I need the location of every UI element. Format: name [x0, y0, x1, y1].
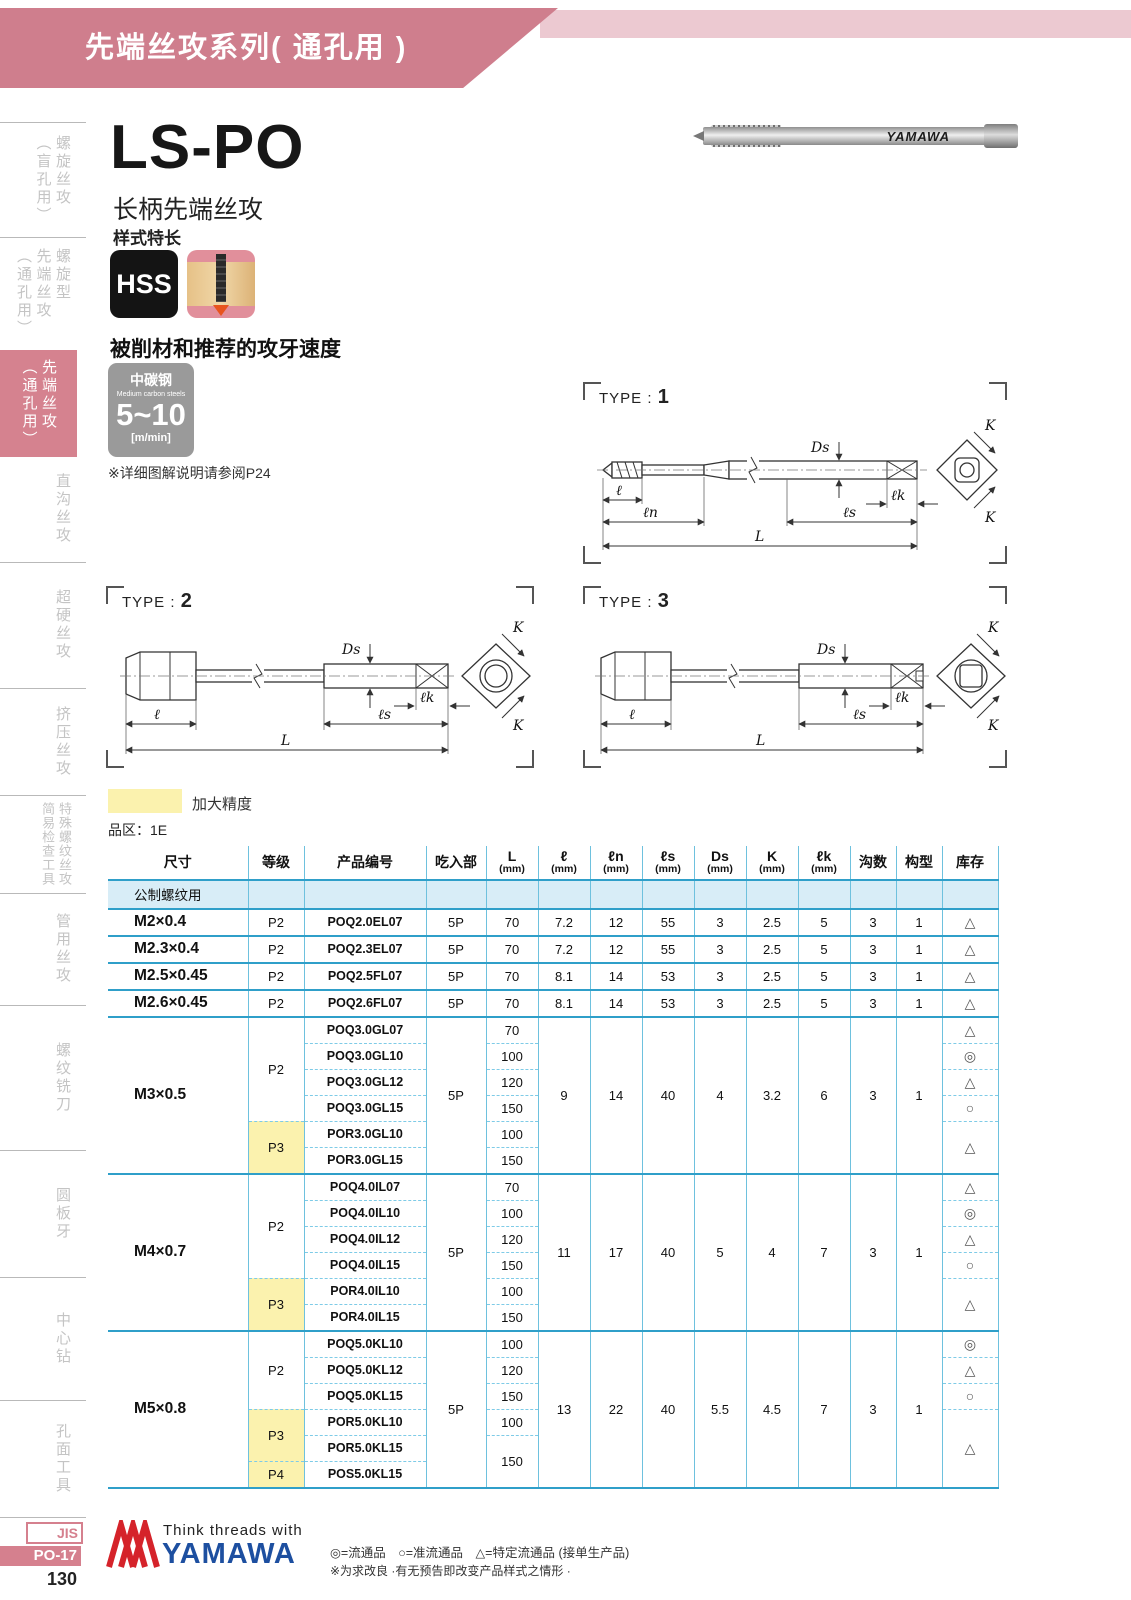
dim-label-k: K [984, 418, 997, 434]
sidebar-item-spiral-blind[interactable]: 螺旋丝攻 （盲孔用） [0, 123, 78, 236]
stock-cell: ◎ [942, 1200, 998, 1226]
col-header-unit: (mm) [799, 864, 850, 876]
sidebar-item-thread-mill[interactable]: 螺纹铣刀 [0, 1006, 78, 1149]
value-cell: 70 [486, 1174, 538, 1201]
code-cell: POQ2.0EL07 [304, 909, 426, 936]
stock-cell: △ [942, 1278, 998, 1331]
dim-label-k: K [987, 620, 1000, 636]
dim-label-k: K [512, 718, 525, 734]
page-number: 130 [0, 1569, 81, 1590]
col-header-main: Ds [695, 849, 746, 864]
code-cell: POR3.0GL15 [304, 1147, 426, 1174]
code-cell: POQ3.0GL07 [304, 1017, 426, 1044]
code-cell: POQ3.0GL15 [304, 1095, 426, 1121]
diagram-type-1: TYPE : 1 Ds ℓ ℓn ℓs [583, 382, 1007, 564]
code-cell: POQ5.0KL10 [304, 1331, 426, 1358]
table-row: M2.3×0.4 P2 POQ2.3EL07 5P 70 7.2 12 55 3… [108, 936, 998, 963]
value-cell: 5P [426, 1017, 486, 1174]
code-cell: POQ4.0IL07 [304, 1174, 426, 1201]
brand-tagline: Think threads with [163, 1522, 303, 1539]
value-cell: 5P [426, 936, 486, 963]
value-cell: 150 [486, 1252, 538, 1278]
series-label: 品区：1E [108, 820, 167, 840]
empty-cell [426, 880, 486, 909]
size-cell: M3×0.5 [108, 1017, 248, 1174]
grade-cell: P2 [248, 1017, 304, 1122]
code-cell: POQ4.0IL12 [304, 1226, 426, 1252]
diagram-type-2: TYPE : 2 Ds ℓ ℓs ℓk L [106, 586, 534, 768]
section-label: 公制螺纹用 [108, 880, 248, 909]
col-header-main: K [747, 849, 798, 864]
reference-note: ※详细图解说明请参阅P24 [108, 463, 271, 483]
sidebar-item-carbide[interactable]: 超硬丝攻 [0, 563, 78, 686]
grade-cell-highlight: P3 [248, 1121, 304, 1174]
code-cell: POR5.0KL15 [304, 1435, 426, 1461]
col-header: ℓs(mm) [642, 846, 694, 880]
stock-symbol-legend: ◎=流通品 ○=准流通品 △=特定流通品 (接单生产品) [330, 1542, 629, 1561]
type3-drawing: Ds ℓ ℓs ℓk L K K [583, 608, 1007, 766]
product-name: 长柄先端丝攻 [113, 190, 263, 226]
value-cell: 3.2 [746, 1017, 798, 1174]
value-cell: 1 [896, 936, 942, 963]
code-cell: POQ5.0KL12 [304, 1357, 426, 1383]
value-cell: 53 [642, 990, 694, 1017]
sidebar-item-special-thread[interactable]: 特殊螺纹丝攻 简易检查工具 [0, 796, 78, 892]
photo-shank [703, 127, 994, 145]
col-header: ℓn(mm) [590, 846, 642, 880]
empty-cell [896, 880, 942, 909]
stock-cell: ◎ [942, 1331, 998, 1358]
bracket-corner [989, 586, 1007, 604]
value-cell: 100 [486, 1043, 538, 1069]
sidebar-item-center-drill[interactable]: 中心钻 [0, 1278, 78, 1399]
jis-badge: JIS [26, 1522, 83, 1544]
diagram-type-3: TYPE : 3 Ds ℓ ℓs ℓk [583, 586, 1007, 768]
dim-label-k: K [987, 718, 1000, 734]
stock-cell: △ [942, 1357, 998, 1383]
dim-label-l: ℓ [154, 707, 160, 723]
dim-label-lk: ℓk [891, 488, 905, 504]
value-cell: 53 [642, 963, 694, 990]
dim-label-ls: ℓs [378, 707, 391, 723]
sidebar-item-label: 孔面工具 [53, 1423, 73, 1495]
value-cell: 55 [642, 909, 694, 936]
dim-label-L: L [755, 733, 765, 749]
value-cell: 8.1 [538, 990, 590, 1017]
stock-cell: △ [942, 963, 998, 990]
value-cell: 150 [486, 1304, 538, 1331]
table-row: M2×0.4 P2 POQ2.0EL07 5P 70 7.2 12 55 3 2… [108, 909, 998, 936]
size-cell: M2.3×0.4 [108, 936, 248, 963]
value-cell: 1 [896, 990, 942, 1017]
value-cell: 3 [850, 963, 896, 990]
col-header: 吃入部 [426, 846, 486, 880]
material-name-cn: 中碳钢 [108, 370, 194, 390]
stock-cell: △ [942, 936, 998, 963]
empty-cell [746, 880, 798, 909]
empty-cell [942, 880, 998, 909]
value-cell: 2.5 [746, 909, 798, 936]
value-cell: 5.5 [694, 1331, 746, 1488]
dim-label-l: ℓ [629, 707, 635, 723]
stock-cell: △ [942, 990, 998, 1017]
sidebar-item-label: 特殊螺纹丝攻 简易检查工具 [38, 802, 72, 886]
empty-cell [304, 880, 426, 909]
value-cell: 2.5 [746, 936, 798, 963]
empty-cell [850, 880, 896, 909]
col-header-main: ℓs [643, 849, 694, 864]
value-cell: 100 [486, 1121, 538, 1147]
value-cell: 7.2 [538, 909, 590, 936]
col-header: 尺寸 [108, 846, 248, 880]
value-cell: 11 [538, 1174, 590, 1331]
photo-point [693, 131, 704, 141]
value-cell: 5P [426, 1174, 486, 1331]
sidebar-item-label: 螺旋型 先端丝攻 （通孔用） [14, 248, 73, 338]
value-cell: 1 [896, 1017, 942, 1174]
value-cell: 3 [850, 1174, 896, 1331]
value-cell: 6 [798, 1017, 850, 1174]
value-cell: 7 [798, 1174, 850, 1331]
value-cell: 4.5 [746, 1331, 798, 1488]
table-row: M4×0.7 P2 POQ4.0IL07 5P 70 11 17 40 5 4 … [108, 1174, 998, 1201]
value-cell: 5P [426, 990, 486, 1017]
sidebar-item-label: 圆板牙 [53, 1187, 73, 1241]
dim-label-l: ℓ [616, 483, 622, 499]
stock-cell: △ [942, 1017, 998, 1044]
value-cell: 70 [486, 936, 538, 963]
col-header: L(mm) [486, 846, 538, 880]
table-row: M2.6×0.45 P2 POQ2.6FL07 5P 70 8.1 14 53 … [108, 990, 998, 1017]
value-cell: 5 [694, 1174, 746, 1331]
value-cell: 100 [486, 1200, 538, 1226]
col-header-main: ℓk [799, 849, 850, 864]
photo-square-end [984, 124, 1018, 148]
sidebar-item-label: 挤压丝攻 [53, 706, 73, 778]
col-header: K(mm) [746, 846, 798, 880]
value-cell: 40 [642, 1174, 694, 1331]
code-cell: POQ5.0KL15 [304, 1383, 426, 1409]
grade-cell: P2 [248, 990, 304, 1017]
value-cell: 5 [798, 963, 850, 990]
speed-section-title: 被削材和推荐的攻牙速度 [110, 333, 341, 363]
grade-cell: P2 [248, 909, 304, 936]
value-cell: 3 [850, 909, 896, 936]
value-cell: 14 [590, 1017, 642, 1174]
grade-cell: P2 [248, 936, 304, 963]
code-cell: POQ2.5FL07 [304, 963, 426, 990]
col-header-unit: (mm) [695, 864, 746, 876]
value-cell: 1 [896, 1331, 942, 1488]
dim-label-lk: ℓk [895, 690, 909, 706]
dim-label-ls: ℓs [843, 505, 856, 521]
empty-cell [642, 880, 694, 909]
sidebar-item-label: 管用丝攻 [53, 913, 73, 985]
dim-label-ds: Ds [816, 642, 835, 658]
product-style-label: 样式特长 [113, 224, 181, 249]
value-cell: 1 [896, 963, 942, 990]
col-header: 产品编号 [304, 846, 426, 880]
value-cell: 100 [486, 1278, 538, 1304]
sidebar-item-label: 螺纹铣刀 [53, 1042, 73, 1114]
empty-cell [538, 880, 590, 909]
col-header-unit: (mm) [591, 864, 642, 876]
stock-cell: ○ [942, 1095, 998, 1121]
sidebar-item-point-tap-active[interactable]: 先端丝攻 （通孔用） [0, 350, 77, 457]
disclaimer-note: ※为求改良 ·有无预告即改变产品样式之情形 · [330, 1562, 571, 1579]
value-cell: 120 [486, 1069, 538, 1095]
sidebar-item-label: 先端丝攻 （通孔用） [19, 359, 58, 449]
through-hole-icon [187, 250, 255, 318]
product-photo: YAMAWA [693, 122, 1018, 152]
down-arrow-icon [213, 305, 229, 316]
value-cell: 4 [694, 1017, 746, 1174]
sidebar-item-label: 直沟丝攻 [53, 473, 73, 545]
value-cell: 3 [850, 1331, 896, 1488]
type1-drawing: Ds ℓ ℓn ℓs ℓk L K K [583, 404, 1007, 562]
highlight-swatch [108, 789, 182, 813]
sidebar-divider [0, 1517, 86, 1518]
yamawa-monogram-icon [106, 1520, 160, 1570]
grade-cell-highlight: P3 [248, 1409, 304, 1461]
size-cell: M2×0.4 [108, 909, 248, 936]
sidebar-item-forming[interactable]: 挤压丝攻 [0, 689, 78, 794]
sidebar-item-label: 中心钻 [53, 1312, 73, 1366]
code-cell: POQ3.0GL10 [304, 1043, 426, 1069]
brand-wordmark: YAMAWA [162, 1538, 296, 1571]
stock-cell: △ [942, 909, 998, 936]
value-cell: 70 [486, 963, 538, 990]
size-cell: M2.5×0.45 [108, 963, 248, 990]
empty-cell [694, 880, 746, 909]
col-header-main: ℓ [539, 849, 590, 864]
value-cell: 14 [590, 990, 642, 1017]
banner-accent-strip [540, 10, 1131, 38]
value-cell: 3 [694, 990, 746, 1017]
dim-label-ls: ℓs [853, 707, 866, 723]
value-cell: 5P [426, 909, 486, 936]
photo-brand-mark: YAMAWA [886, 129, 950, 144]
value-cell: 17 [590, 1174, 642, 1331]
stock-cell: ○ [942, 1383, 998, 1409]
grade-cell-highlight: P3 [248, 1278, 304, 1331]
sidebar-item-spiral-point-type[interactable]: 螺旋型 先端丝攻 （通孔用） [0, 238, 78, 348]
code-cell: POQ2.3EL07 [304, 936, 426, 963]
value-cell: 150 [486, 1095, 538, 1121]
value-cell: 13 [538, 1331, 590, 1488]
grade-cell: P2 [248, 963, 304, 990]
value-cell: 120 [486, 1357, 538, 1383]
value-cell: 9 [538, 1017, 590, 1174]
stock-cell: △ [942, 1174, 998, 1201]
table-section-row: 公制螺纹用 [108, 880, 998, 909]
code-cell: POR4.0IL10 [304, 1278, 426, 1304]
value-cell: 7 [798, 1331, 850, 1488]
col-header-unit: (mm) [643, 864, 694, 876]
value-cell: 150 [486, 1435, 538, 1488]
value-cell: 100 [486, 1331, 538, 1358]
dim-label-k: K [512, 620, 525, 636]
value-cell: 12 [590, 936, 642, 963]
empty-cell [798, 880, 850, 909]
col-header-unit: (mm) [747, 864, 798, 876]
sidebar-item-label: 螺旋丝攻 （盲孔用） [33, 135, 72, 225]
stock-cell: △ [942, 1069, 998, 1095]
col-header: 构型 [896, 846, 942, 880]
sidebar-item-hole-tool[interactable]: 孔面工具 [0, 1401, 78, 1516]
value-cell: 5 [798, 909, 850, 936]
spec-table-wrapper: 尺寸 等级 产品编号 吃入部 L(mm) ℓ(mm) ℓn(mm) ℓs(mm)… [108, 846, 999, 1489]
product-model: LS-PO [110, 112, 304, 183]
value-cell: 40 [642, 1331, 694, 1488]
hss-badge: HSS [110, 250, 178, 318]
sidebar-item-straight-flute[interactable]: 直沟丝攻 [0, 458, 78, 560]
stock-cell: △ [942, 1121, 998, 1174]
code-cell: POR3.0GL10 [304, 1121, 426, 1147]
type2-drawing: Ds ℓ ℓs ℓk L K K [106, 608, 534, 766]
table-row: M2.5×0.45 P2 POQ2.5FL07 5P 70 8.1 14 53 … [108, 963, 998, 990]
value-cell: 5 [798, 936, 850, 963]
value-cell: 120 [486, 1226, 538, 1252]
speed-badge: 中碳钢 Medium carbon steels 5~10 [m/min] [108, 363, 194, 457]
code-cell: POS5.0KL15 [304, 1461, 426, 1488]
value-cell: 1 [896, 1174, 942, 1331]
value-cell: 3 [850, 936, 896, 963]
code-cell: POQ2.6FL07 [304, 990, 426, 1017]
value-cell: 1 [896, 909, 942, 936]
size-cell: M2.6×0.45 [108, 990, 248, 1017]
value-cell: 150 [486, 1147, 538, 1174]
empty-cell [486, 880, 538, 909]
col-header-main: ℓn [591, 849, 642, 864]
dim-label-ds: Ds [341, 642, 360, 658]
table-header-row: 尺寸 等级 产品编号 吃入部 L(mm) ℓ(mm) ℓn(mm) ℓs(mm)… [108, 846, 998, 880]
value-cell: 40 [642, 1017, 694, 1174]
dim-label-L: L [280, 733, 290, 749]
value-cell: 5 [798, 990, 850, 1017]
value-cell: 100 [486, 1409, 538, 1435]
speed-unit: [m/min] [108, 432, 194, 444]
value-cell: 3 [850, 1017, 896, 1174]
stock-cell: △ [942, 1226, 998, 1252]
sidebar-item-round-die[interactable]: 圆板牙 [0, 1151, 78, 1276]
sidebar-item-label: 超硬丝攻 [53, 589, 73, 661]
tap-silhouette [216, 254, 226, 302]
page-title: 先端丝攻系列( 通孔用 ) [85, 24, 407, 66]
value-cell: 8.1 [538, 963, 590, 990]
section-code-badge: PO-17 [0, 1546, 81, 1566]
bracket-corner [516, 586, 534, 604]
value-cell: 5P [426, 963, 486, 990]
value-cell: 3 [694, 963, 746, 990]
col-header: Ds(mm) [694, 846, 746, 880]
empty-cell [248, 880, 304, 909]
value-cell: 150 [486, 1383, 538, 1409]
col-header-unit: (mm) [487, 864, 538, 876]
catalog-page: 先端丝攻系列( 通孔用 ) 螺旋丝攻 （盲孔用） 螺旋型 先端丝攻 （通孔用） … [0, 0, 1131, 1600]
col-header-unit: (mm) [539, 864, 590, 876]
value-cell: 14 [590, 963, 642, 990]
value-cell: 3 [694, 909, 746, 936]
col-header: ℓk(mm) [798, 846, 850, 880]
code-cell: POR5.0KL10 [304, 1409, 426, 1435]
value-cell: 2.5 [746, 990, 798, 1017]
code-cell: POR4.0IL15 [304, 1304, 426, 1331]
value-cell: 2.5 [746, 963, 798, 990]
value-cell: 22 [590, 1331, 642, 1488]
col-header: 沟数 [850, 846, 896, 880]
code-cell: POQ4.0IL15 [304, 1252, 426, 1278]
bracket-corner [989, 382, 1007, 400]
highlight-label: 加大精度 [192, 793, 252, 814]
size-cell: M5×0.8 [108, 1331, 248, 1488]
grade-cell-highlight: P4 [248, 1461, 304, 1488]
empty-cell [590, 880, 642, 909]
dim-label-ds: Ds [810, 440, 829, 456]
value-cell: 12 [590, 909, 642, 936]
value-cell: 7.2 [538, 936, 590, 963]
grade-cell: P2 [248, 1174, 304, 1279]
stock-cell: ◎ [942, 1043, 998, 1069]
grade-cell: P2 [248, 1331, 304, 1410]
spec-table: 尺寸 等级 产品编号 吃入部 L(mm) ℓ(mm) ℓn(mm) ℓs(mm)… [108, 846, 999, 1489]
size-cell: M4×0.7 [108, 1174, 248, 1331]
col-header: ℓ(mm) [538, 846, 590, 880]
value-cell: 3 [850, 990, 896, 1017]
value-cell: 4 [746, 1174, 798, 1331]
col-header: 库存 [942, 846, 998, 880]
dim-label-k: K [984, 510, 997, 526]
stock-cell: △ [942, 1409, 998, 1488]
sidebar-item-pipe-tap[interactable]: 管用丝攻 [0, 894, 78, 1004]
table-row: M5×0.8 P2 POQ5.0KL10 5P 100 13 22 40 5.5… [108, 1331, 998, 1358]
value-cell: 70 [486, 909, 538, 936]
code-cell: POQ3.0GL12 [304, 1069, 426, 1095]
dim-label-L: L [754, 529, 764, 545]
value-cell: 70 [486, 990, 538, 1017]
dim-label-ln: ℓn [643, 505, 658, 521]
value-cell: 3 [694, 936, 746, 963]
col-header: 等级 [248, 846, 304, 880]
code-cell: POQ4.0IL10 [304, 1200, 426, 1226]
value-cell: 5P [426, 1331, 486, 1488]
stock-cell: ○ [942, 1252, 998, 1278]
value-cell: 55 [642, 936, 694, 963]
value-cell: 70 [486, 1017, 538, 1044]
col-header-main: L [487, 849, 538, 864]
speed-range: 5~10 [108, 398, 194, 432]
dim-label-lk: ℓk [420, 690, 434, 706]
table-row: M3×0.5 P2 POQ3.0GL07 5P 70 9 14 40 4 3.2… [108, 1017, 998, 1044]
